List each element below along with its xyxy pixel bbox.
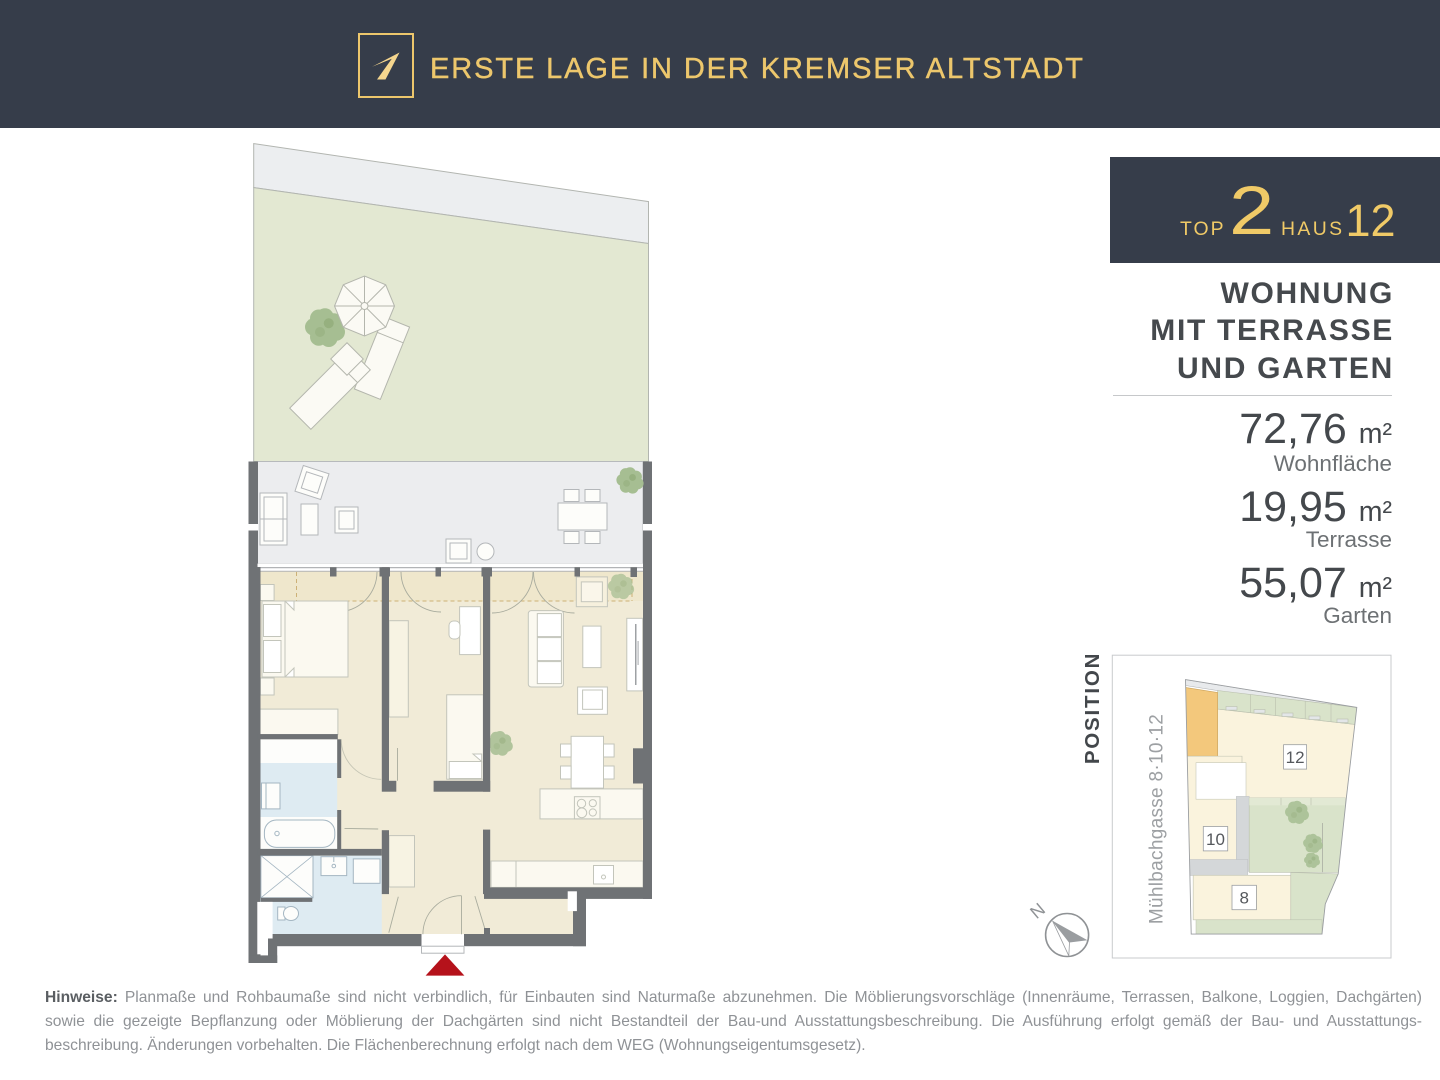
svg-text:8: 8 (1239, 889, 1248, 908)
svg-text:Mühlbachgasse 8·10·12: Mühlbachgasse 8·10·12 (1147, 714, 1168, 924)
svg-text:12: 12 (1286, 748, 1305, 767)
svg-text:N: N (1026, 899, 1049, 923)
svg-text:10: 10 (1206, 830, 1225, 849)
